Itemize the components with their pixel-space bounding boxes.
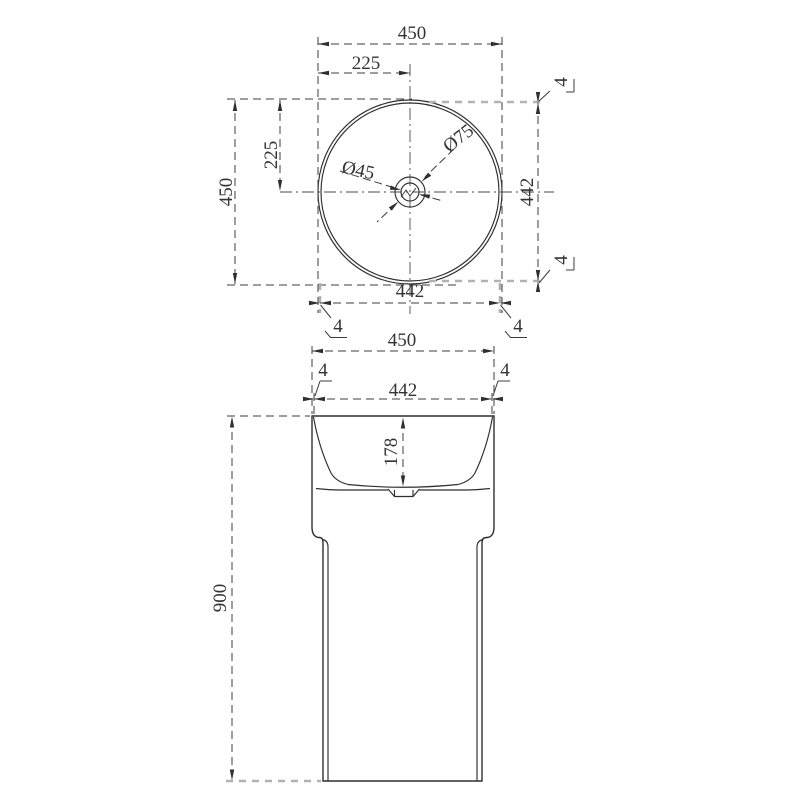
dim-label-half-height: 225	[261, 141, 282, 170]
rim-callout-top-right: 4	[539, 77, 574, 101]
front-extension-lines	[226, 346, 494, 781]
label-drain-diameter: Ø45	[340, 157, 376, 184]
dim-label-front-inner-width: 442	[389, 380, 418, 401]
basin-outline	[312, 416, 494, 781]
dim-basin-depth: 178	[381, 418, 405, 487]
label-rim-bottom-left: 4	[333, 316, 343, 337]
dim-bottom-inner-width: 442	[309, 281, 511, 305]
dim-label-overall-height: 900	[210, 584, 231, 613]
dim-half-height: 225	[261, 100, 282, 191]
label-overflow-diameter: Ø75	[439, 120, 478, 157]
label-wall-right: 4	[500, 360, 510, 381]
drain-break-squiggle	[401, 188, 416, 197]
rim-callout-bottom-left: 4	[321, 305, 348, 338]
dim-left-height: 450	[216, 100, 237, 284]
wall-callout-right: 4	[493, 360, 510, 396]
dim-front-inner-width: 442	[303, 380, 503, 401]
label-rim-bottom-right-v: 4	[551, 255, 572, 265]
label-wall-left: 4	[318, 360, 328, 381]
dim-label-top-width: 450	[398, 23, 427, 44]
rim-callout-bottom-right-v: 4	[539, 255, 574, 283]
dim-overall-height: 900	[210, 417, 234, 781]
rim-callout-bottom-right-h: 4	[501, 305, 528, 338]
technical-drawing-page: 450 225 450 225	[0, 0, 800, 800]
label-rim-bottom-right-h: 4	[513, 316, 523, 337]
auxiliary-gray-lines	[320, 102, 546, 313]
dim-label-left-height: 450	[216, 178, 237, 207]
dim-label-half-width: 225	[352, 53, 381, 74]
dim-label-front-width: 450	[388, 330, 417, 351]
dim-top-width: 450	[318, 23, 502, 46]
pedestal-basin-drawing: 450 225 450 225	[0, 0, 800, 800]
wall-callout-left: 4	[315, 360, 332, 396]
top-view: 450 225 450 225	[216, 23, 574, 338]
leader-overflow-diameter: Ø75	[377, 120, 478, 222]
dim-label-basin-depth: 178	[381, 438, 402, 467]
leader-drain-diameter: Ø45	[340, 157, 443, 201]
dim-label-bottom-inner-width: 442	[396, 281, 425, 302]
dim-right-inner-height: 442	[517, 92, 540, 292]
front-view: 450 442 4 4 178	[210, 330, 510, 781]
dim-label-right-inner-height: 442	[517, 178, 538, 207]
label-rim-top-right: 4	[551, 77, 572, 87]
drain-outlet	[395, 490, 414, 497]
dim-half-width: 225	[318, 53, 410, 75]
